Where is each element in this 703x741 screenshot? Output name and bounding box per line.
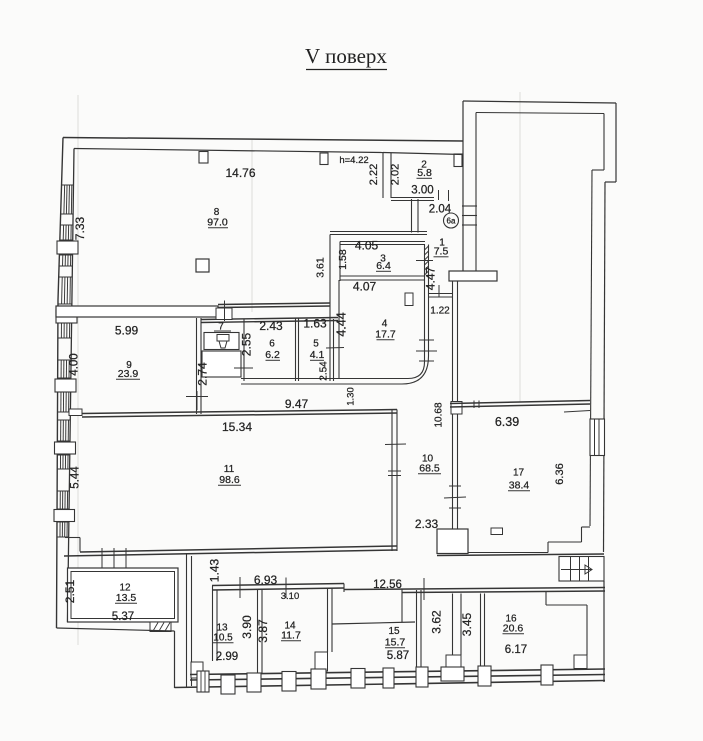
svg-text:12.56: 12.56 bbox=[373, 579, 402, 591]
svg-text:2.54: 2.54 bbox=[319, 361, 330, 381]
svg-text:2.99: 2.99 bbox=[216, 651, 238, 663]
svg-text:3.00: 3.00 bbox=[411, 185, 433, 197]
svg-text:17: 17 bbox=[513, 468, 525, 479]
svg-text:2.04: 2.04 bbox=[429, 204, 452, 216]
svg-text:15.34: 15.34 bbox=[222, 420, 252, 434]
svg-text:3.10: 3.10 bbox=[281, 591, 300, 602]
svg-text:10.5: 10.5 bbox=[213, 633, 233, 644]
svg-text:3.45: 3.45 bbox=[460, 612, 474, 636]
svg-text:2.51: 2.51 bbox=[63, 579, 77, 603]
svg-text:1.30: 1.30 bbox=[346, 387, 357, 406]
svg-text:V поверх: V поверх bbox=[305, 44, 387, 68]
svg-text:5.99: 5.99 bbox=[115, 324, 139, 338]
svg-text:98.6: 98.6 bbox=[219, 474, 240, 486]
svg-text:4.1: 4.1 bbox=[310, 349, 325, 361]
svg-text:68.5: 68.5 bbox=[419, 463, 440, 475]
svg-text:14.76: 14.76 bbox=[225, 166, 255, 180]
svg-text:2.33: 2.33 bbox=[415, 517, 439, 531]
svg-text:38.4: 38.4 bbox=[509, 480, 530, 492]
svg-text:5.8: 5.8 bbox=[417, 167, 432, 179]
svg-text:6.17: 6.17 bbox=[505, 644, 527, 656]
svg-text:17.7: 17.7 bbox=[375, 329, 396, 341]
svg-text:20.6: 20.6 bbox=[503, 623, 524, 635]
svg-text:6.39: 6.39 bbox=[495, 415, 519, 429]
svg-text:7: 7 bbox=[218, 322, 224, 333]
svg-text:10.68: 10.68 bbox=[434, 402, 445, 427]
svg-text:5.37: 5.37 bbox=[112, 611, 134, 623]
svg-text:6.93: 6.93 bbox=[254, 573, 278, 587]
svg-text:2.22: 2.22 bbox=[368, 164, 380, 185]
svg-text:6.2: 6.2 bbox=[265, 349, 280, 361]
svg-text:7.33: 7.33 bbox=[73, 216, 87, 240]
svg-text:15: 15 bbox=[388, 626, 400, 637]
svg-text:5.44: 5.44 bbox=[70, 466, 82, 489]
svg-text:3.87: 3.87 bbox=[256, 619, 270, 643]
svg-text:1.58: 1.58 bbox=[337, 249, 349, 270]
svg-text:6.36: 6.36 bbox=[554, 463, 566, 484]
svg-text:3.90: 3.90 bbox=[240, 615, 254, 639]
svg-text:4.44: 4.44 bbox=[335, 312, 349, 336]
svg-text:1.43: 1.43 bbox=[208, 558, 222, 582]
svg-text:97.0: 97.0 bbox=[207, 217, 228, 229]
svg-text:23.9: 23.9 bbox=[118, 368, 139, 380]
svg-text:11.7: 11.7 bbox=[281, 630, 301, 642]
svg-text:1.63: 1.63 bbox=[303, 317, 327, 331]
svg-text:5.87: 5.87 bbox=[387, 650, 409, 662]
svg-text:2.43: 2.43 bbox=[259, 319, 283, 333]
svg-text:2.02: 2.02 bbox=[390, 164, 402, 185]
svg-text:1.22: 1.22 bbox=[430, 306, 450, 317]
svg-text:4.47: 4.47 bbox=[424, 266, 438, 290]
svg-text:4.00: 4.00 bbox=[69, 353, 81, 375]
svg-text:15.7: 15.7 bbox=[385, 637, 406, 649]
svg-text:4.05: 4.05 bbox=[355, 239, 379, 253]
svg-text:h=4.22: h=4.22 bbox=[339, 155, 368, 166]
svg-text:7.5: 7.5 bbox=[434, 246, 449, 258]
svg-text:3.61: 3.61 bbox=[315, 257, 327, 278]
svg-text:6: 6 bbox=[269, 339, 275, 350]
svg-text:2.74: 2.74 bbox=[196, 362, 210, 386]
svg-text:9.47: 9.47 bbox=[285, 397, 309, 411]
svg-text:3.62: 3.62 bbox=[430, 610, 444, 634]
svg-text:2.55: 2.55 bbox=[240, 332, 254, 356]
svg-text:6a: 6a bbox=[447, 217, 456, 226]
svg-text:5: 5 bbox=[313, 339, 319, 350]
svg-text:13.5: 13.5 bbox=[116, 592, 137, 604]
svg-text:4.07: 4.07 bbox=[353, 280, 377, 294]
svg-text:6.4: 6.4 bbox=[376, 260, 391, 272]
